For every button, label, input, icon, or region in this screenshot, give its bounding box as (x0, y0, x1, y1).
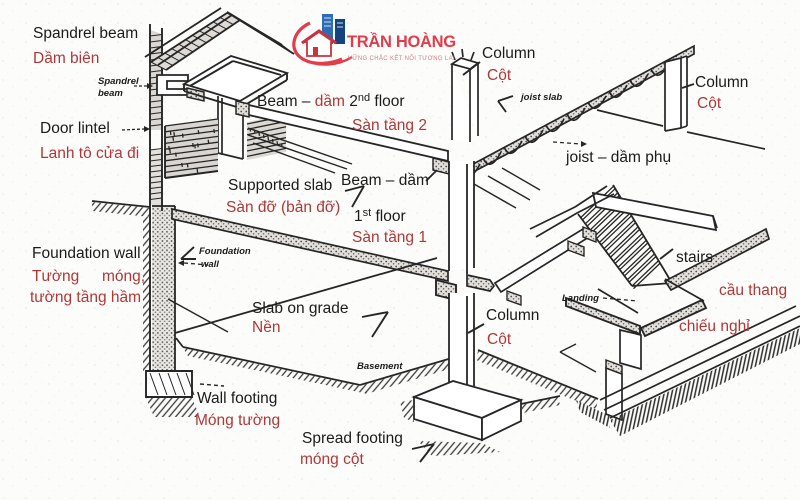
svg-text:Supported slab: Supported slab (228, 177, 332, 194)
svg-text:Móng tường: Móng tường (195, 412, 280, 429)
svg-text:Beam – dầm: Beam – dầm (341, 172, 429, 189)
svg-text:Sàn tầng 1: Sàn tầng 1 (352, 229, 427, 246)
svg-text:VỮNG CHẮC KẾT NỐI TƯƠNG LAI: VỮNG CHẮC KẾT NỐI TƯƠNG LAI (348, 54, 455, 62)
svg-text:Sàn tầng 2: Sàn tầng 2 (352, 117, 427, 134)
svg-text:Cột: Cột (487, 67, 512, 84)
svg-text:Foundation wall: Foundation wall (32, 245, 141, 262)
svg-text:joist – dầm phụ: joist – dầm phụ (565, 149, 671, 166)
svg-text:Slab on grade: Slab on grade (252, 300, 349, 317)
svg-text:Foundation: Foundation (199, 246, 251, 257)
svg-text:Lanh tô cửa đi: Lanh tô cửa đi (40, 145, 139, 162)
svg-text:Column: Column (695, 74, 748, 91)
svg-text:wall: wall (201, 259, 219, 270)
svg-text:Column: Column (486, 307, 539, 324)
svg-text:stairs: stairs (676, 249, 713, 266)
svg-text:móng cột: móng cột (300, 451, 364, 468)
svg-text:Spread footing: Spread footing (302, 430, 403, 447)
svg-text:1st floor: 1st floor (354, 207, 406, 225)
svg-text:Column: Column (482, 45, 535, 62)
svg-text:Cột: Cột (487, 331, 512, 348)
svg-text:TRẦN HOÀNG: TRẦN HOÀNG (347, 32, 456, 51)
svg-text:joist slab: joist slab (519, 92, 562, 103)
svg-text:Nền: Nền (252, 319, 280, 336)
svg-text:cầu thang: cầu thang (719, 282, 787, 299)
svg-text:Landing: Landing (562, 293, 599, 304)
svg-text:beam: beam (98, 88, 123, 99)
svg-text:Spandrel beam: Spandrel beam (33, 25, 138, 42)
svg-text:chiếu nghỉ: chiếu nghỉ (679, 318, 750, 335)
svg-text:Door lintel: Door lintel (40, 120, 110, 137)
svg-text:Basement: Basement (357, 361, 403, 372)
svg-text:Dầm biên: Dầm biên (33, 50, 99, 67)
svg-text:tường tầng hầm: tường tầng hầm (30, 289, 141, 306)
svg-text:Sàn đỡ (bản đỡ): Sàn đỡ (bản đỡ) (226, 199, 340, 216)
svg-text:Wall footing: Wall footing (197, 390, 277, 407)
svg-text:Spandrel: Spandrel (98, 76, 139, 87)
svg-text:Beam – dầm 2nd floor: Beam – dầm 2nd floor (257, 92, 405, 110)
svg-text:Cột: Cột (697, 95, 722, 112)
